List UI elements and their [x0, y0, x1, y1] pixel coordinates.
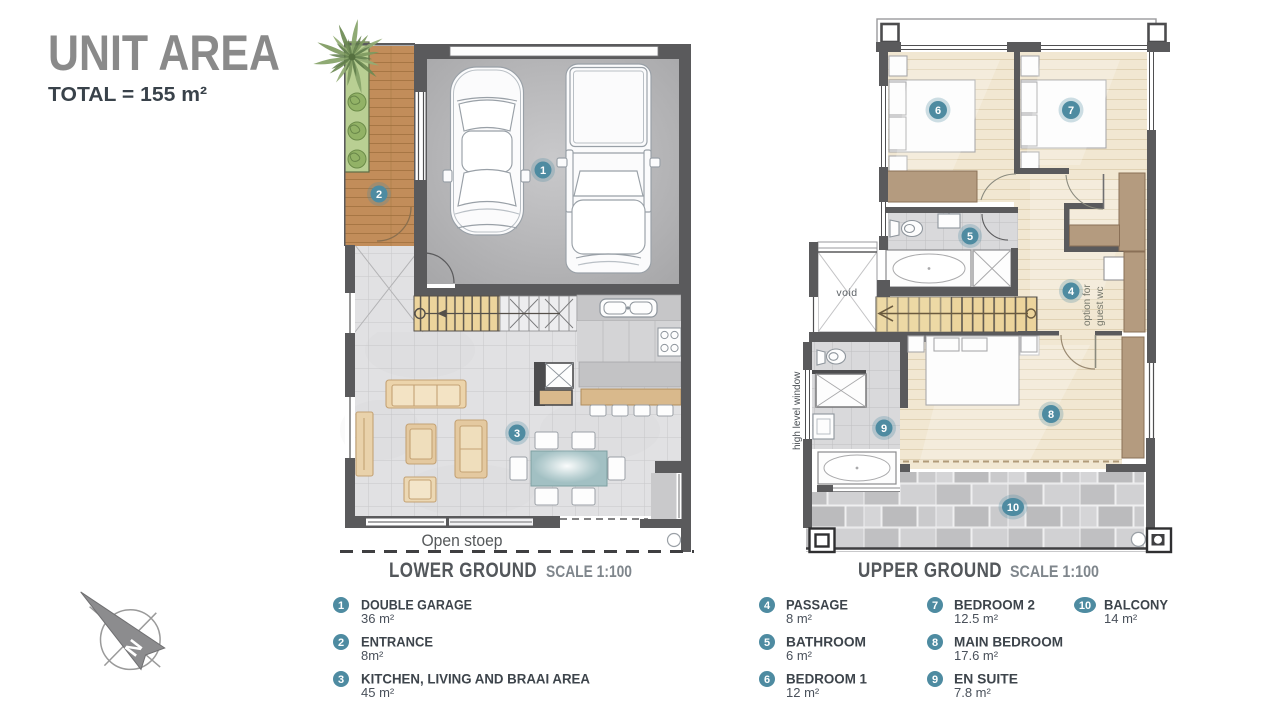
svg-text:3: 3	[514, 428, 520, 440]
svg-text:SCALE 1:100: SCALE 1:100	[546, 562, 632, 581]
svg-text:7.8 m²: 7.8 m²	[954, 685, 992, 700]
svg-text:4: 4	[764, 600, 771, 612]
svg-text:9: 9	[932, 674, 938, 686]
svg-text:void: void	[836, 287, 857, 299]
svg-text:6: 6	[764, 674, 770, 686]
svg-text:6 m²: 6 m²	[786, 648, 813, 663]
svg-text:12 m²: 12 m²	[786, 685, 820, 700]
svg-text:5: 5	[967, 231, 973, 243]
svg-text:1: 1	[338, 600, 344, 612]
svg-text:36 m²: 36 m²	[361, 611, 395, 626]
svg-text:Open stoep: Open stoep	[422, 532, 503, 550]
svg-text:high level window: high level window	[792, 371, 803, 450]
svg-text:TOTAL = 155 m²: TOTAL = 155 m²	[48, 83, 207, 106]
svg-text:14 m²: 14 m²	[1104, 611, 1138, 626]
svg-text:8 m²: 8 m²	[786, 611, 813, 626]
svg-text:10: 10	[1079, 600, 1091, 612]
svg-text:4: 4	[1068, 286, 1075, 298]
svg-text:2: 2	[376, 189, 382, 201]
svg-text:LOWER GROUND: LOWER GROUND	[389, 559, 537, 582]
svg-text:5: 5	[764, 637, 770, 649]
svg-text:KITCHEN, LIVING AND BRAAI AREA: KITCHEN, LIVING AND BRAAI AREA	[361, 672, 590, 687]
svg-text:1: 1	[540, 165, 546, 177]
svg-text:7: 7	[1068, 105, 1074, 117]
svg-text:10: 10	[1007, 502, 1019, 514]
svg-text:SCALE 1:100: SCALE 1:100	[1010, 562, 1099, 581]
svg-text:2: 2	[338, 637, 344, 649]
svg-text:8: 8	[1048, 409, 1054, 421]
svg-text:8m²: 8m²	[361, 648, 384, 663]
svg-text:option for: option for	[1082, 284, 1093, 326]
svg-text:UPPER GROUND: UPPER GROUND	[858, 559, 1002, 582]
svg-text:8: 8	[932, 637, 938, 649]
svg-text:7: 7	[932, 600, 938, 612]
svg-text:12.5 m²: 12.5 m²	[954, 611, 999, 626]
svg-text:UNIT AREA: UNIT AREA	[48, 25, 280, 81]
svg-text:3: 3	[338, 674, 344, 686]
svg-text:45 m²: 45 m²	[361, 685, 395, 700]
svg-text:9: 9	[881, 423, 887, 435]
svg-text:guest wc: guest wc	[1095, 287, 1106, 326]
svg-text:17.6 m²: 17.6 m²	[954, 648, 999, 663]
svg-text:6: 6	[935, 105, 941, 117]
